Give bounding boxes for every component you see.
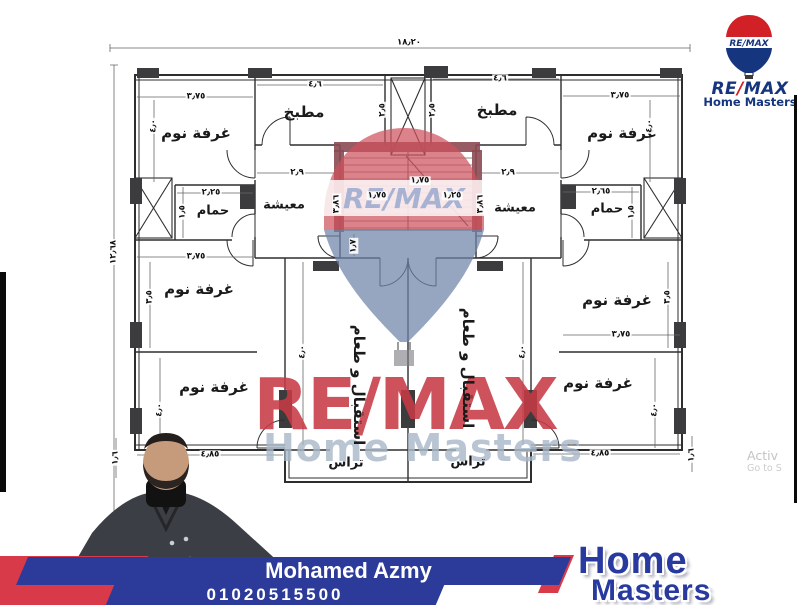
dim-stair-run: ١٫٧٥ <box>367 191 388 200</box>
dim-overall-height: ١٢٫٦٨ <box>109 239 118 265</box>
activate-watermark-line2: Go to S <box>747 463 782 474</box>
dim-landing-width: ١٫٧ <box>349 238 358 254</box>
activate-watermark-line1: Activ <box>747 448 778 463</box>
room-label-bedroom-bottom-right: غرفة نوم <box>563 374 633 392</box>
dim-midbedroom-depth: ٣٫٥ <box>663 289 672 305</box>
room-label-kitchen-left: مطبخ <box>284 103 325 121</box>
room-label-reception-right: استقبال و طعام <box>459 308 477 429</box>
room-label-terrace-left: تراس <box>328 456 363 471</box>
dim-reception-depth: ٤٫٠ <box>298 344 307 360</box>
dim-living-width: ٢٫٩ <box>500 168 516 177</box>
room-label-living-right: معيشة <box>494 201 536 216</box>
footer-logo-masters: Masters <box>591 574 711 605</box>
dim-shaft-side: ٢٫٥ <box>378 102 387 118</box>
room-label-terrace-right: تراس <box>450 455 485 470</box>
dim-bedroom-width: ٣٫٧٥ <box>186 92 207 101</box>
right-edge-artifact <box>794 95 797 503</box>
room-label-bedroom-top-left: غرفة نوم <box>161 124 231 142</box>
dim-bottom-bedroom-width: ٤٫٨٥ <box>590 449 611 458</box>
dim-terrace-edge: ١٫٦ <box>687 447 696 463</box>
dim-bedroom-depth: ٤٫٠ <box>155 402 164 418</box>
dim-living-depth: ٣٫٨٦ <box>332 194 341 215</box>
dim-reception-depth: ٤٫٠ <box>518 344 527 360</box>
dim-bath-depth: ١٫٥ <box>627 204 636 220</box>
dim-bedroom-width: ٣٫٧٥ <box>610 91 631 100</box>
room-label-kitchen-right: مطبخ <box>477 101 518 119</box>
room-label-bath-left: حمام <box>197 204 230 219</box>
dim-stair-run: ١٫٧٥ <box>410 176 431 185</box>
home-masters-text-watermark: Home Masters <box>263 426 547 470</box>
dim-bedroom-depth: ٤٫٠ <box>650 402 659 418</box>
dim-kitchen-width: ٤٫٦ <box>492 74 508 83</box>
dim-bedroom-depth: ٤٫٠ <box>149 118 158 134</box>
dim-stair-flight: ١٫٢٥ <box>442 191 463 200</box>
balloon-band-text: RE/MAX <box>729 39 769 49</box>
room-label-bedroom-mid-right: غرفة نوم <box>582 291 652 309</box>
dim-bedroom-width: ٣٫٧٥ <box>611 330 632 339</box>
dim-overall-width: ١٨٫٢٠ <box>396 38 422 47</box>
room-label-reception-left: استقبال و طعام <box>350 325 368 446</box>
agent-name: Mohamed Azmy <box>22 557 565 585</box>
agent-name-banner: Mohamed Azmy <box>16 557 571 585</box>
agent-phone: 01020515500 <box>110 585 440 605</box>
dim-bath-width-right: ٢٫٦٥ <box>591 187 612 196</box>
dim-bath-depth: ١٫٥ <box>178 204 187 220</box>
dim-kitchen-width: ٤٫٦ <box>307 80 323 89</box>
left-edge-artifact <box>0 272 6 492</box>
room-label-bath-right: حمام <box>591 202 624 217</box>
remax-balloon-icon: RE/MAX <box>720 13 778 79</box>
dim-bedroom-depth: ٤٫٠ <box>645 118 654 134</box>
room-label-bedroom-bottom-left: غرفة نوم <box>179 378 249 396</box>
flyer-canvas: RE/MAX RE/MAX Home Masters غرفة نوم غرفة… <box>0 0 799 605</box>
dim-bath-width-left: ٢٫٢٥ <box>201 188 222 197</box>
room-label-living-left: معيشة <box>263 198 305 213</box>
dim-living-depth: ٣٫٨٦ <box>476 194 485 215</box>
dim-bedroom-width: ٣٫٧٥ <box>186 252 207 261</box>
remax-sub-label: Home Masters <box>703 95 797 109</box>
dim-living-width: ٢٫٩ <box>289 168 305 177</box>
balloon-watermark: RE/MAX <box>300 120 510 375</box>
dim-shaft-side: ٢٫٥ <box>428 102 437 118</box>
dim-midbedroom-depth: ٣٫٥ <box>145 289 154 305</box>
agent-phone-banner: 01020515500 <box>106 585 444 605</box>
room-label-bedroom-mid-left: غرفة نوم <box>164 280 234 298</box>
